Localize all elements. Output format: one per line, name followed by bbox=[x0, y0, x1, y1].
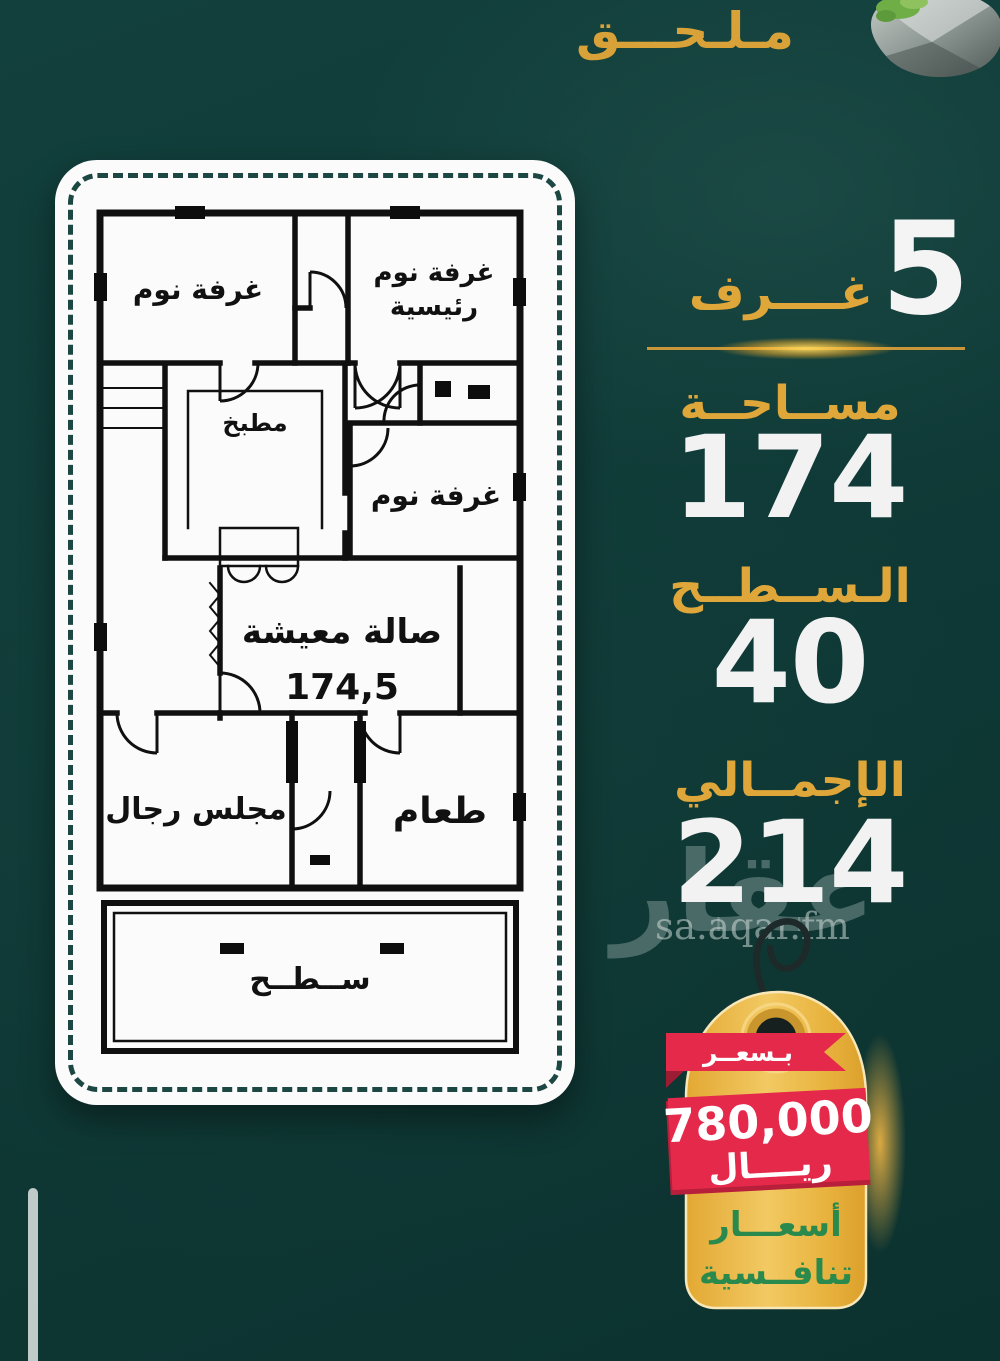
label-majlis: مجلس رجال bbox=[105, 792, 286, 827]
poster: مـلـحـــق bbox=[0, 0, 1000, 1361]
left-decorative-strip bbox=[28, 1188, 38, 1361]
floorplan-card: غرفة نوم غرفة نوم رئيسية مطبخ غرفة نوم ص… bbox=[55, 160, 575, 1105]
label-bedroom-mid: غرفة نوم bbox=[371, 479, 501, 512]
page-title: مـلـحـــق bbox=[460, 2, 910, 60]
rooms-label: غــــرف bbox=[689, 265, 873, 321]
label-living-area-value: 174,5 bbox=[285, 667, 399, 708]
floorplan-drawing: غرفة نوم غرفة نوم رئيسية مطبخ غرفة نوم ص… bbox=[70, 173, 560, 1093]
roof-value: 40 bbox=[600, 606, 980, 720]
gold-divider bbox=[647, 347, 965, 350]
price-tag: بـسعــر 780,000 ريــــال أسعـــار تنافــ… bbox=[618, 888, 948, 1358]
area-value: 174 bbox=[600, 421, 980, 535]
label-master-bedroom-line1: غرفة نوم bbox=[374, 258, 495, 288]
tagline-line2: تنافــسية bbox=[699, 1253, 853, 1293]
tagline-line1: أسعـــار bbox=[708, 1202, 841, 1245]
label-kitchen: مطبخ bbox=[222, 409, 287, 437]
label-master-bedroom-line2: رئيسية bbox=[390, 292, 478, 322]
label-terrace: ســطــح bbox=[249, 962, 370, 997]
price-amount: 780,000 bbox=[662, 1089, 874, 1154]
rooms-value: 5 bbox=[881, 214, 968, 327]
rooms-count-row: غــــرف 5 bbox=[689, 214, 968, 327]
price-panel: 780,000 ريــــال bbox=[662, 1088, 876, 1196]
rock-image bbox=[852, 0, 1000, 92]
price-currency: ريــــال bbox=[707, 1143, 834, 1189]
ribbon-label: بـسعــر bbox=[701, 1038, 793, 1068]
label-dining: طعام bbox=[393, 791, 487, 832]
label-living-room: صالة معيشة bbox=[242, 612, 442, 652]
label-bedroom-top: غرفة نوم bbox=[133, 273, 263, 306]
